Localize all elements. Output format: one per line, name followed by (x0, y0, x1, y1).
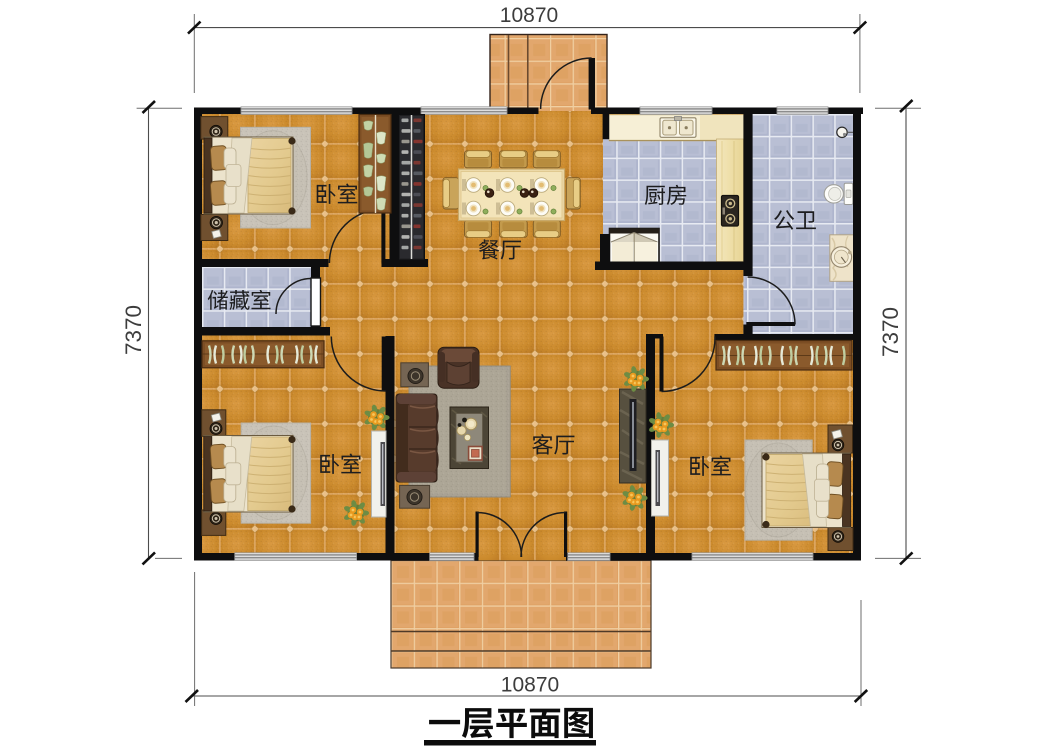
svg-text:10870: 10870 (500, 4, 558, 27)
svg-text:10870: 10870 (501, 674, 559, 697)
svg-text:7370: 7370 (878, 307, 903, 357)
svg-text:7370: 7370 (121, 305, 146, 355)
